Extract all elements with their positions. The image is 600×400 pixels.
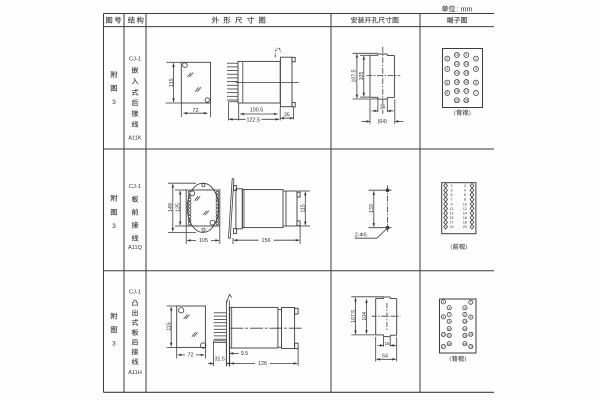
svg-text:133: 133 (369, 204, 375, 213)
svg-text:): ) (469, 110, 471, 116)
svg-text:9.5: 9.5 (241, 351, 249, 357)
svg-text:4: 4 (464, 189, 466, 193)
svg-text:8: 8 (464, 198, 466, 202)
svg-text:7: 7 (448, 313, 450, 317)
svg-text:4: 4 (446, 67, 448, 71)
svg-text:18: 18 (463, 220, 467, 224)
svg-text:9: 9 (465, 53, 467, 57)
svg-text:10: 10 (455, 53, 459, 57)
svg-text:(: ( (449, 356, 451, 362)
svg-text:17: 17 (450, 220, 454, 224)
svg-text:CJ-1: CJ-1 (129, 290, 141, 296)
svg-text:20: 20 (463, 342, 467, 346)
svg-text:107.5: 107.5 (352, 69, 358, 82)
svg-text:2: 2 (464, 184, 466, 188)
svg-text:CJ-1: CJ-1 (129, 57, 141, 63)
svg-text:4: 4 (464, 306, 466, 310)
svg-text:10: 10 (463, 319, 467, 323)
svg-text:7: 7 (475, 91, 477, 95)
svg-text:12: 12 (463, 207, 467, 211)
svg-text:16: 16 (384, 341, 390, 346)
svg-text:): ) (464, 356, 466, 362)
svg-text:15: 15 (447, 334, 451, 338)
svg-text:3: 3 (112, 223, 116, 230)
svg-text:149: 149 (168, 203, 174, 212)
svg-text:11: 11 (450, 207, 454, 211)
svg-text:(: ( (454, 110, 456, 116)
svg-text:12: 12 (455, 62, 459, 66)
svg-text:107.5: 107.5 (351, 310, 357, 323)
svg-text:1: 1 (443, 300, 445, 304)
svg-text:64: 64 (382, 354, 388, 360)
svg-text:20: 20 (463, 225, 467, 229)
svg-text:14: 14 (455, 71, 459, 75)
svg-text:72: 72 (193, 108, 199, 114)
svg-text:15: 15 (464, 80, 468, 84)
svg-text:20: 20 (455, 98, 459, 102)
svg-text:18: 18 (469, 345, 473, 349)
svg-text:A11Q: A11Q (128, 245, 143, 251)
svg-text:A11K: A11K (128, 136, 142, 142)
svg-text:19: 19 (450, 225, 454, 229)
svg-text:17: 17 (464, 89, 468, 93)
svg-text:5: 5 (443, 315, 445, 319)
svg-text:16: 16 (463, 216, 467, 220)
svg-text:(64): (64) (378, 119, 387, 125)
svg-text:15: 15 (450, 216, 454, 220)
svg-text:6: 6 (464, 193, 466, 197)
svg-text:35: 35 (284, 112, 290, 118)
svg-text:7: 7 (451, 198, 453, 202)
svg-text:3: 3 (112, 99, 116, 106)
svg-text:115: 115 (301, 204, 307, 212)
svg-text:16: 16 (455, 80, 459, 84)
svg-text:3: 3 (475, 67, 477, 71)
svg-text:19: 19 (464, 98, 468, 102)
svg-text:13: 13 (464, 71, 468, 75)
svg-text:11: 11 (448, 327, 451, 331)
svg-text:156: 156 (262, 238, 271, 244)
svg-text:3: 3 (112, 340, 116, 347)
svg-text:2: 2 (470, 300, 472, 304)
svg-text:1: 1 (475, 57, 477, 61)
svg-text:16: 16 (380, 105, 386, 111)
svg-text:8: 8 (446, 91, 448, 95)
svg-text:5: 5 (475, 81, 477, 85)
svg-text:17: 17 (442, 345, 446, 349)
svg-text:16: 16 (463, 334, 467, 338)
svg-text:72: 72 (188, 353, 194, 359)
svg-text:(: ( (450, 244, 452, 250)
svg-text:125: 125 (176, 203, 182, 212)
svg-text:10: 10 (463, 202, 467, 206)
svg-text:126: 126 (258, 361, 267, 367)
svg-text:104: 104 (362, 312, 368, 321)
svg-text:2: 2 (446, 57, 448, 61)
svg-text:mm: mm (461, 4, 473, 13)
svg-text:6: 6 (446, 81, 448, 85)
svg-text:18: 18 (455, 89, 459, 93)
svg-text:9: 9 (448, 319, 450, 323)
svg-text:115: 115 (167, 322, 173, 331)
svg-text:): ) (465, 244, 467, 250)
svg-text:12: 12 (463, 327, 467, 331)
svg-text:13: 13 (442, 333, 446, 337)
svg-text:100.5: 100.5 (250, 107, 264, 113)
svg-text:8: 8 (464, 313, 466, 317)
svg-text:105: 105 (199, 238, 208, 244)
svg-text:14: 14 (463, 211, 467, 215)
svg-text:A11H: A11H (128, 370, 142, 376)
svg-text:13: 13 (450, 211, 454, 215)
svg-text:3: 3 (451, 189, 453, 193)
svg-text:9: 9 (451, 202, 453, 206)
svg-text:19: 19 (447, 342, 451, 346)
svg-text:3: 3 (448, 306, 450, 310)
svg-text:CJ-1: CJ-1 (129, 184, 141, 190)
svg-text:105: 105 (359, 72, 365, 81)
svg-text:14: 14 (469, 332, 473, 336)
svg-text:1: 1 (451, 184, 453, 188)
svg-text:2-Φ5: 2-Φ5 (355, 233, 367, 239)
svg-text:122.5: 122.5 (247, 117, 261, 123)
svg-text:6: 6 (470, 315, 472, 319)
svg-text:11: 11 (465, 62, 469, 66)
svg-text:31.5: 31.5 (214, 357, 225, 363)
svg-text:115: 115 (169, 78, 175, 87)
svg-text:5: 5 (451, 193, 453, 197)
svg-text::: : (457, 6, 459, 13)
